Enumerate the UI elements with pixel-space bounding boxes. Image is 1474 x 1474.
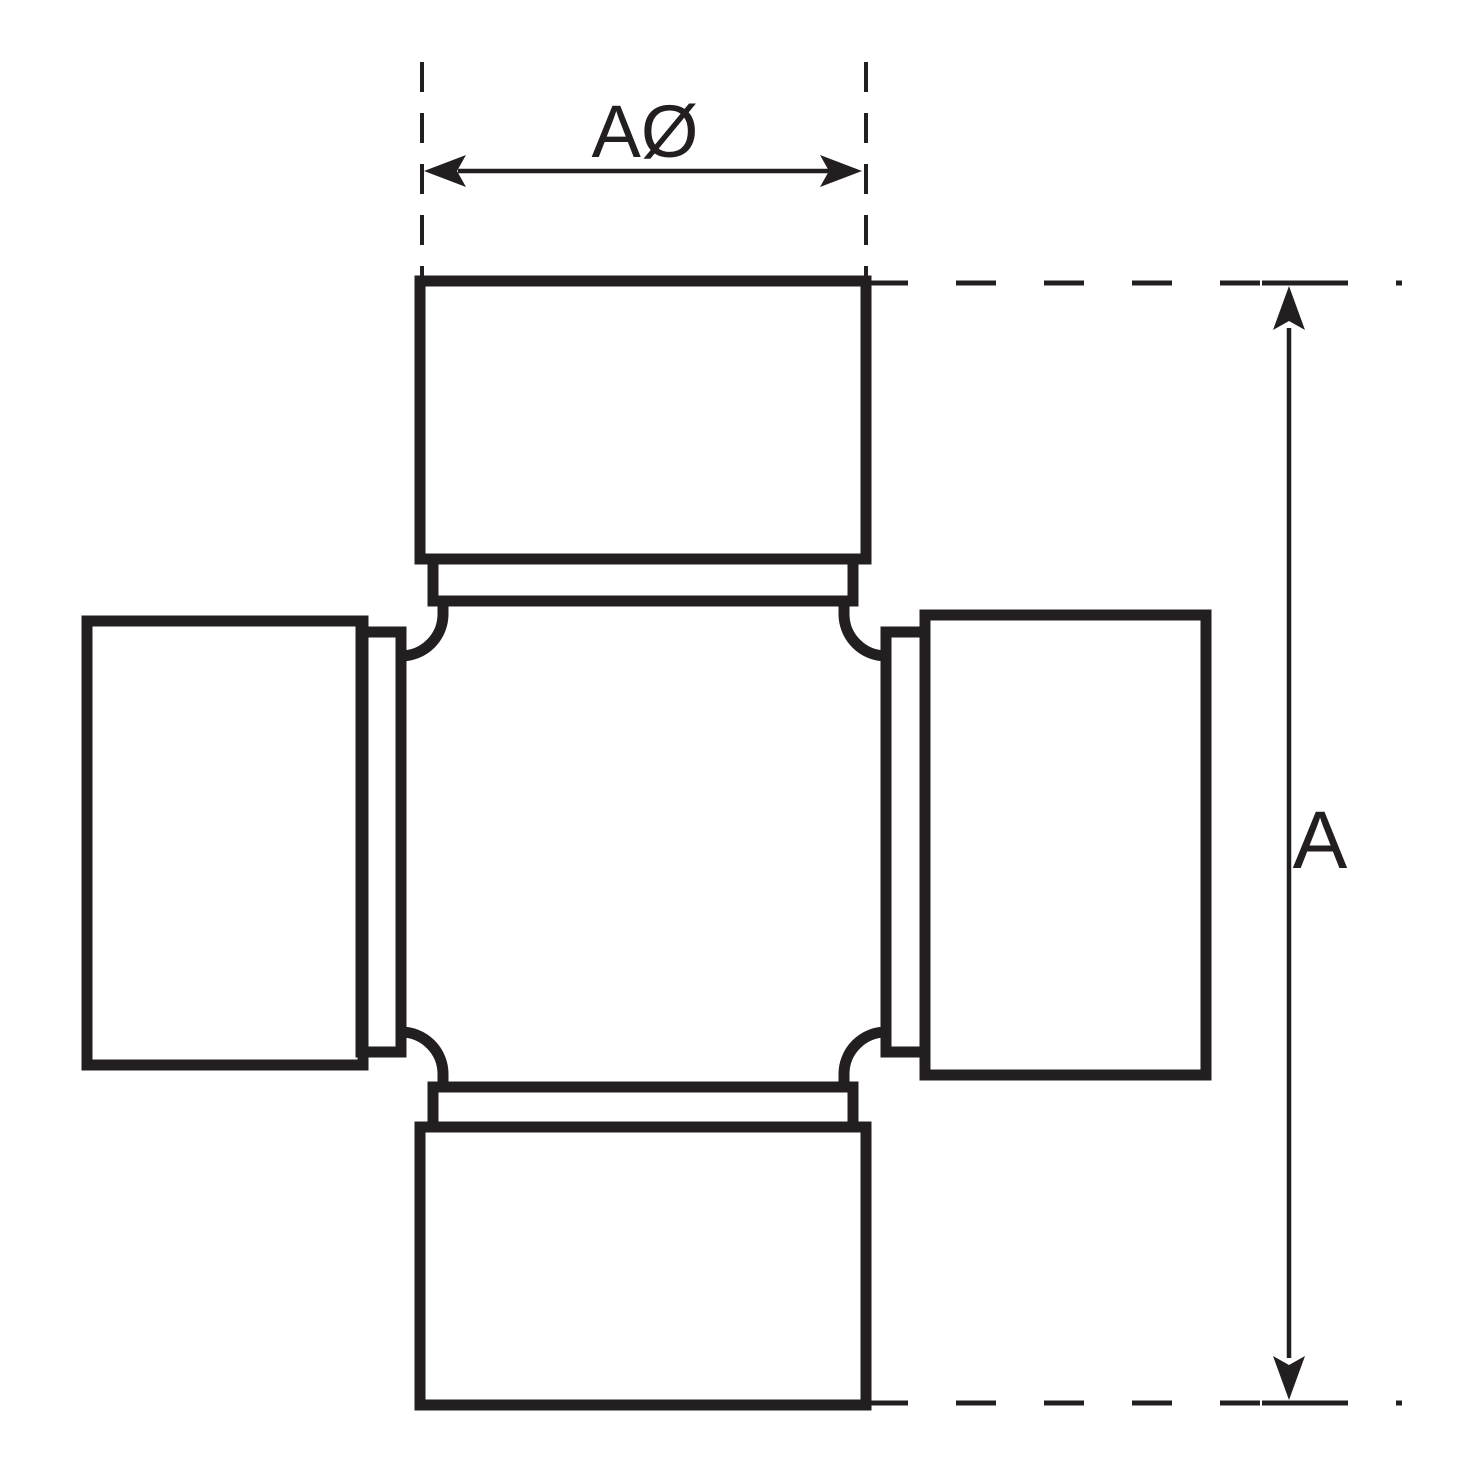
fillet-lower-left xyxy=(401,1032,443,1090)
collar-bottom xyxy=(433,1087,853,1127)
bearing-cap-bottom xyxy=(420,1127,866,1405)
arrowhead-down xyxy=(1273,1356,1305,1400)
cap-diameter-label: AØ xyxy=(592,90,699,173)
drawing-canvas: AØ A xyxy=(0,0,1474,1474)
height-dimension: A xyxy=(868,283,1402,1403)
collar-right xyxy=(886,632,925,1052)
bearing-cap-right xyxy=(925,615,1206,1075)
technical-drawing: AØ A xyxy=(0,0,1474,1474)
arrowhead-up xyxy=(1273,286,1305,330)
fillet-upper-right xyxy=(844,598,886,656)
bearing-cap-top xyxy=(420,281,866,559)
overall-length-label: A xyxy=(1293,795,1348,886)
collar-top xyxy=(433,559,853,601)
fillet-upper-left xyxy=(401,598,443,656)
width-dimension: AØ xyxy=(422,62,866,281)
bearing-cap-left xyxy=(87,621,363,1065)
part-outline xyxy=(87,281,1206,1405)
fillet-lower-right xyxy=(844,1032,886,1090)
